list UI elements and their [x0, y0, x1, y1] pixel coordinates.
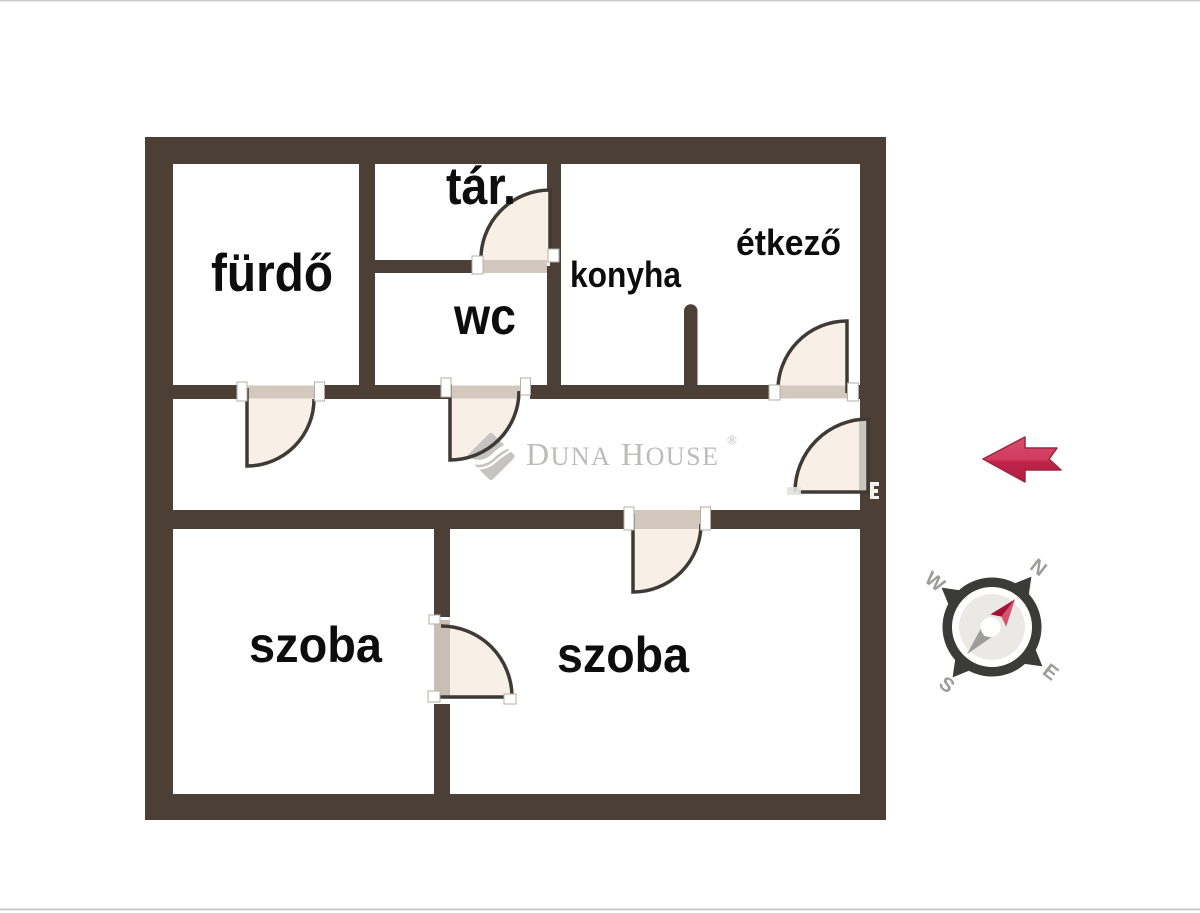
svg-text:fürdő: fürdő — [211, 244, 333, 303]
svg-text:szoba: szoba — [557, 627, 690, 683]
svg-text:wc: wc — [453, 288, 516, 346]
svg-text:konyha: konyha — [570, 254, 682, 295]
svg-text:DUNA HOUSE: DUNA HOUSE — [526, 436, 719, 472]
svg-text:tár.: tár. — [446, 157, 516, 216]
svg-text:étkező: étkező — [736, 222, 841, 263]
svg-text:szoba: szoba — [249, 617, 383, 673]
svg-text:®: ® — [727, 432, 737, 447]
